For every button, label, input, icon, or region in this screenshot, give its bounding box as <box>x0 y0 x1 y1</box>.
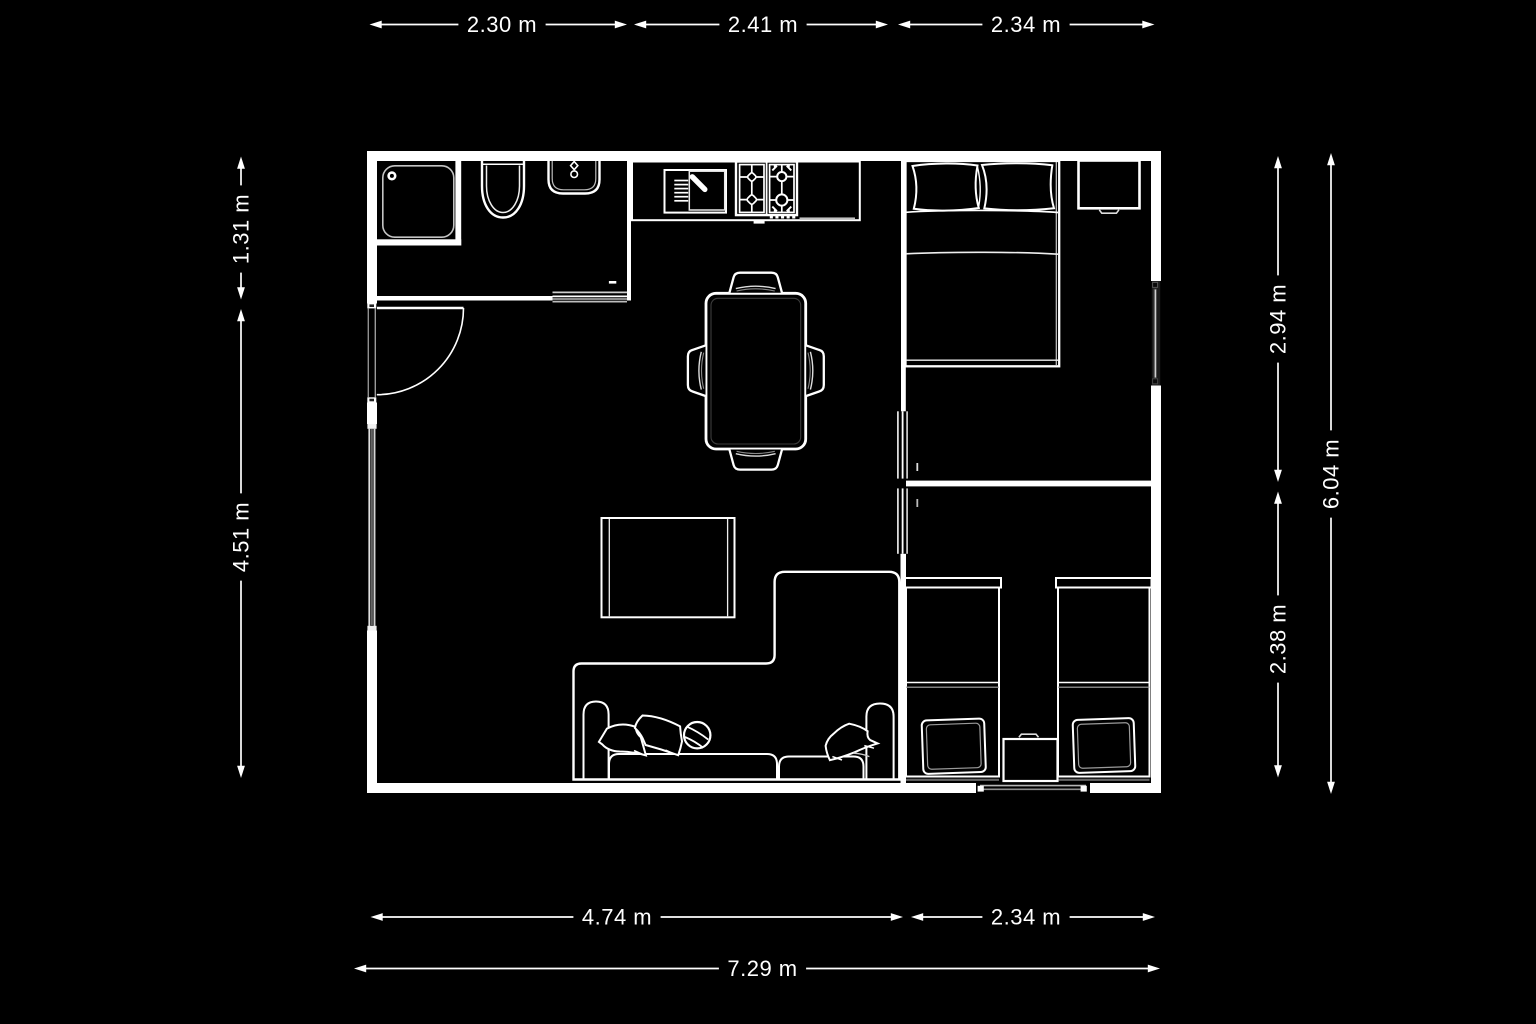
svg-text:2.30 m: 2.30 m <box>467 12 537 37</box>
svg-text:4.51 m: 4.51 m <box>229 502 254 572</box>
svg-text:6.04 m: 6.04 m <box>1319 439 1344 509</box>
svg-text:2.38 m: 2.38 m <box>1266 604 1291 674</box>
svg-text:2.94 m: 2.94 m <box>1266 284 1291 354</box>
svg-text:7.29 m: 7.29 m <box>727 956 797 981</box>
svg-text:1.31 m: 1.31 m <box>229 194 254 264</box>
svg-text:2.34 m: 2.34 m <box>991 905 1061 930</box>
svg-text:2.34 m: 2.34 m <box>991 12 1061 37</box>
svg-text:2.41 m: 2.41 m <box>728 12 798 37</box>
svg-text:4.74 m: 4.74 m <box>582 905 652 930</box>
